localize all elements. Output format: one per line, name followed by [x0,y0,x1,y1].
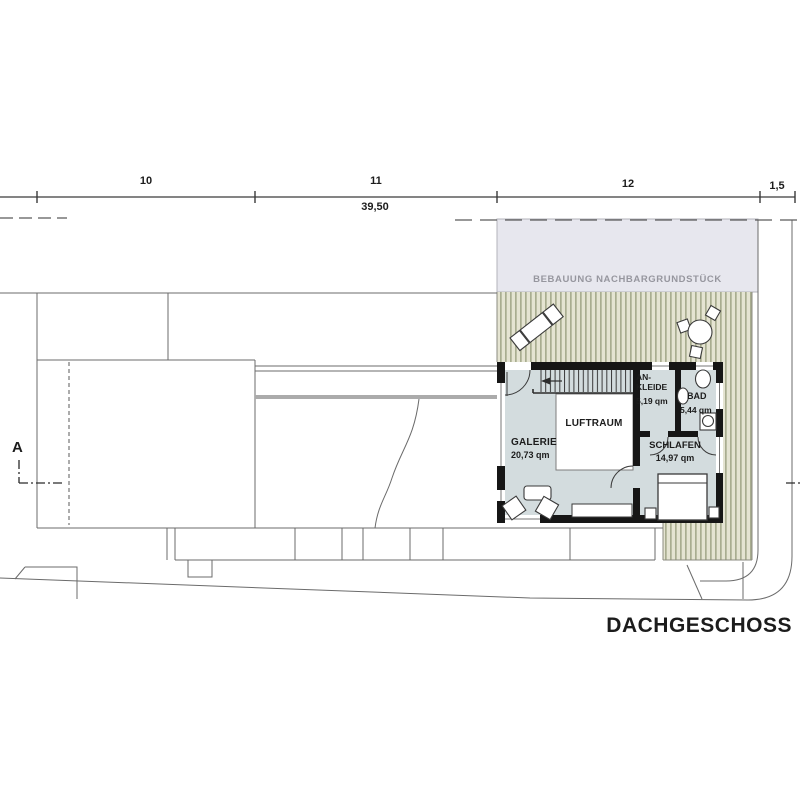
section-marker-a: A [12,439,23,456]
terrace-chair-3 [689,345,702,358]
roof-curve [375,399,419,528]
dim-segment-10: 10 [126,175,166,187]
nightstand-right [709,507,719,518]
terrace-table [688,320,712,344]
luftraum-void [556,394,633,470]
room-bad-name: BAD [687,391,707,401]
bathtub-sink [696,370,711,388]
bed [658,474,707,520]
nightstand-left [645,508,656,519]
garden-step [15,567,77,599]
dim-segment-1-5: 1,5 [757,180,797,192]
floor-plan: 10 11 12 1,5 39,50 A BEBAUUNG NACHBARGRU… [0,0,800,800]
room-galerie-area: 20,73 qm [511,450,550,460]
dim-segment-12: 12 [608,178,648,190]
entry-door-opening [505,362,531,370]
toilet-bowl [703,416,714,427]
room-luftraum-name: LUFTRAUM [554,418,634,429]
entry-step [188,560,212,577]
room-ankleide-area: 5,19 qm [636,396,668,406]
neighbor-area-label: BEBAUUNG NACHBARGRUNDSTÜCK [497,274,758,285]
room-schlafen-name: SCHLAFEN [643,440,707,451]
plan-title: DACHGESCHOSS [600,614,792,638]
plan-drawing [0,0,800,800]
room-galerie-name: GALERIE [511,437,557,448]
dim-segment-11: 11 [356,175,396,187]
room-ankleide-name: AN-KLEIDE [636,372,676,392]
dim-total: 39,50 [350,201,400,213]
roof-ridge-band [255,395,497,399]
room-schlafen-area: 14,97 qm [643,453,707,463]
room-bad-area: 5,44 qm [680,405,712,415]
sideboard [572,504,632,517]
